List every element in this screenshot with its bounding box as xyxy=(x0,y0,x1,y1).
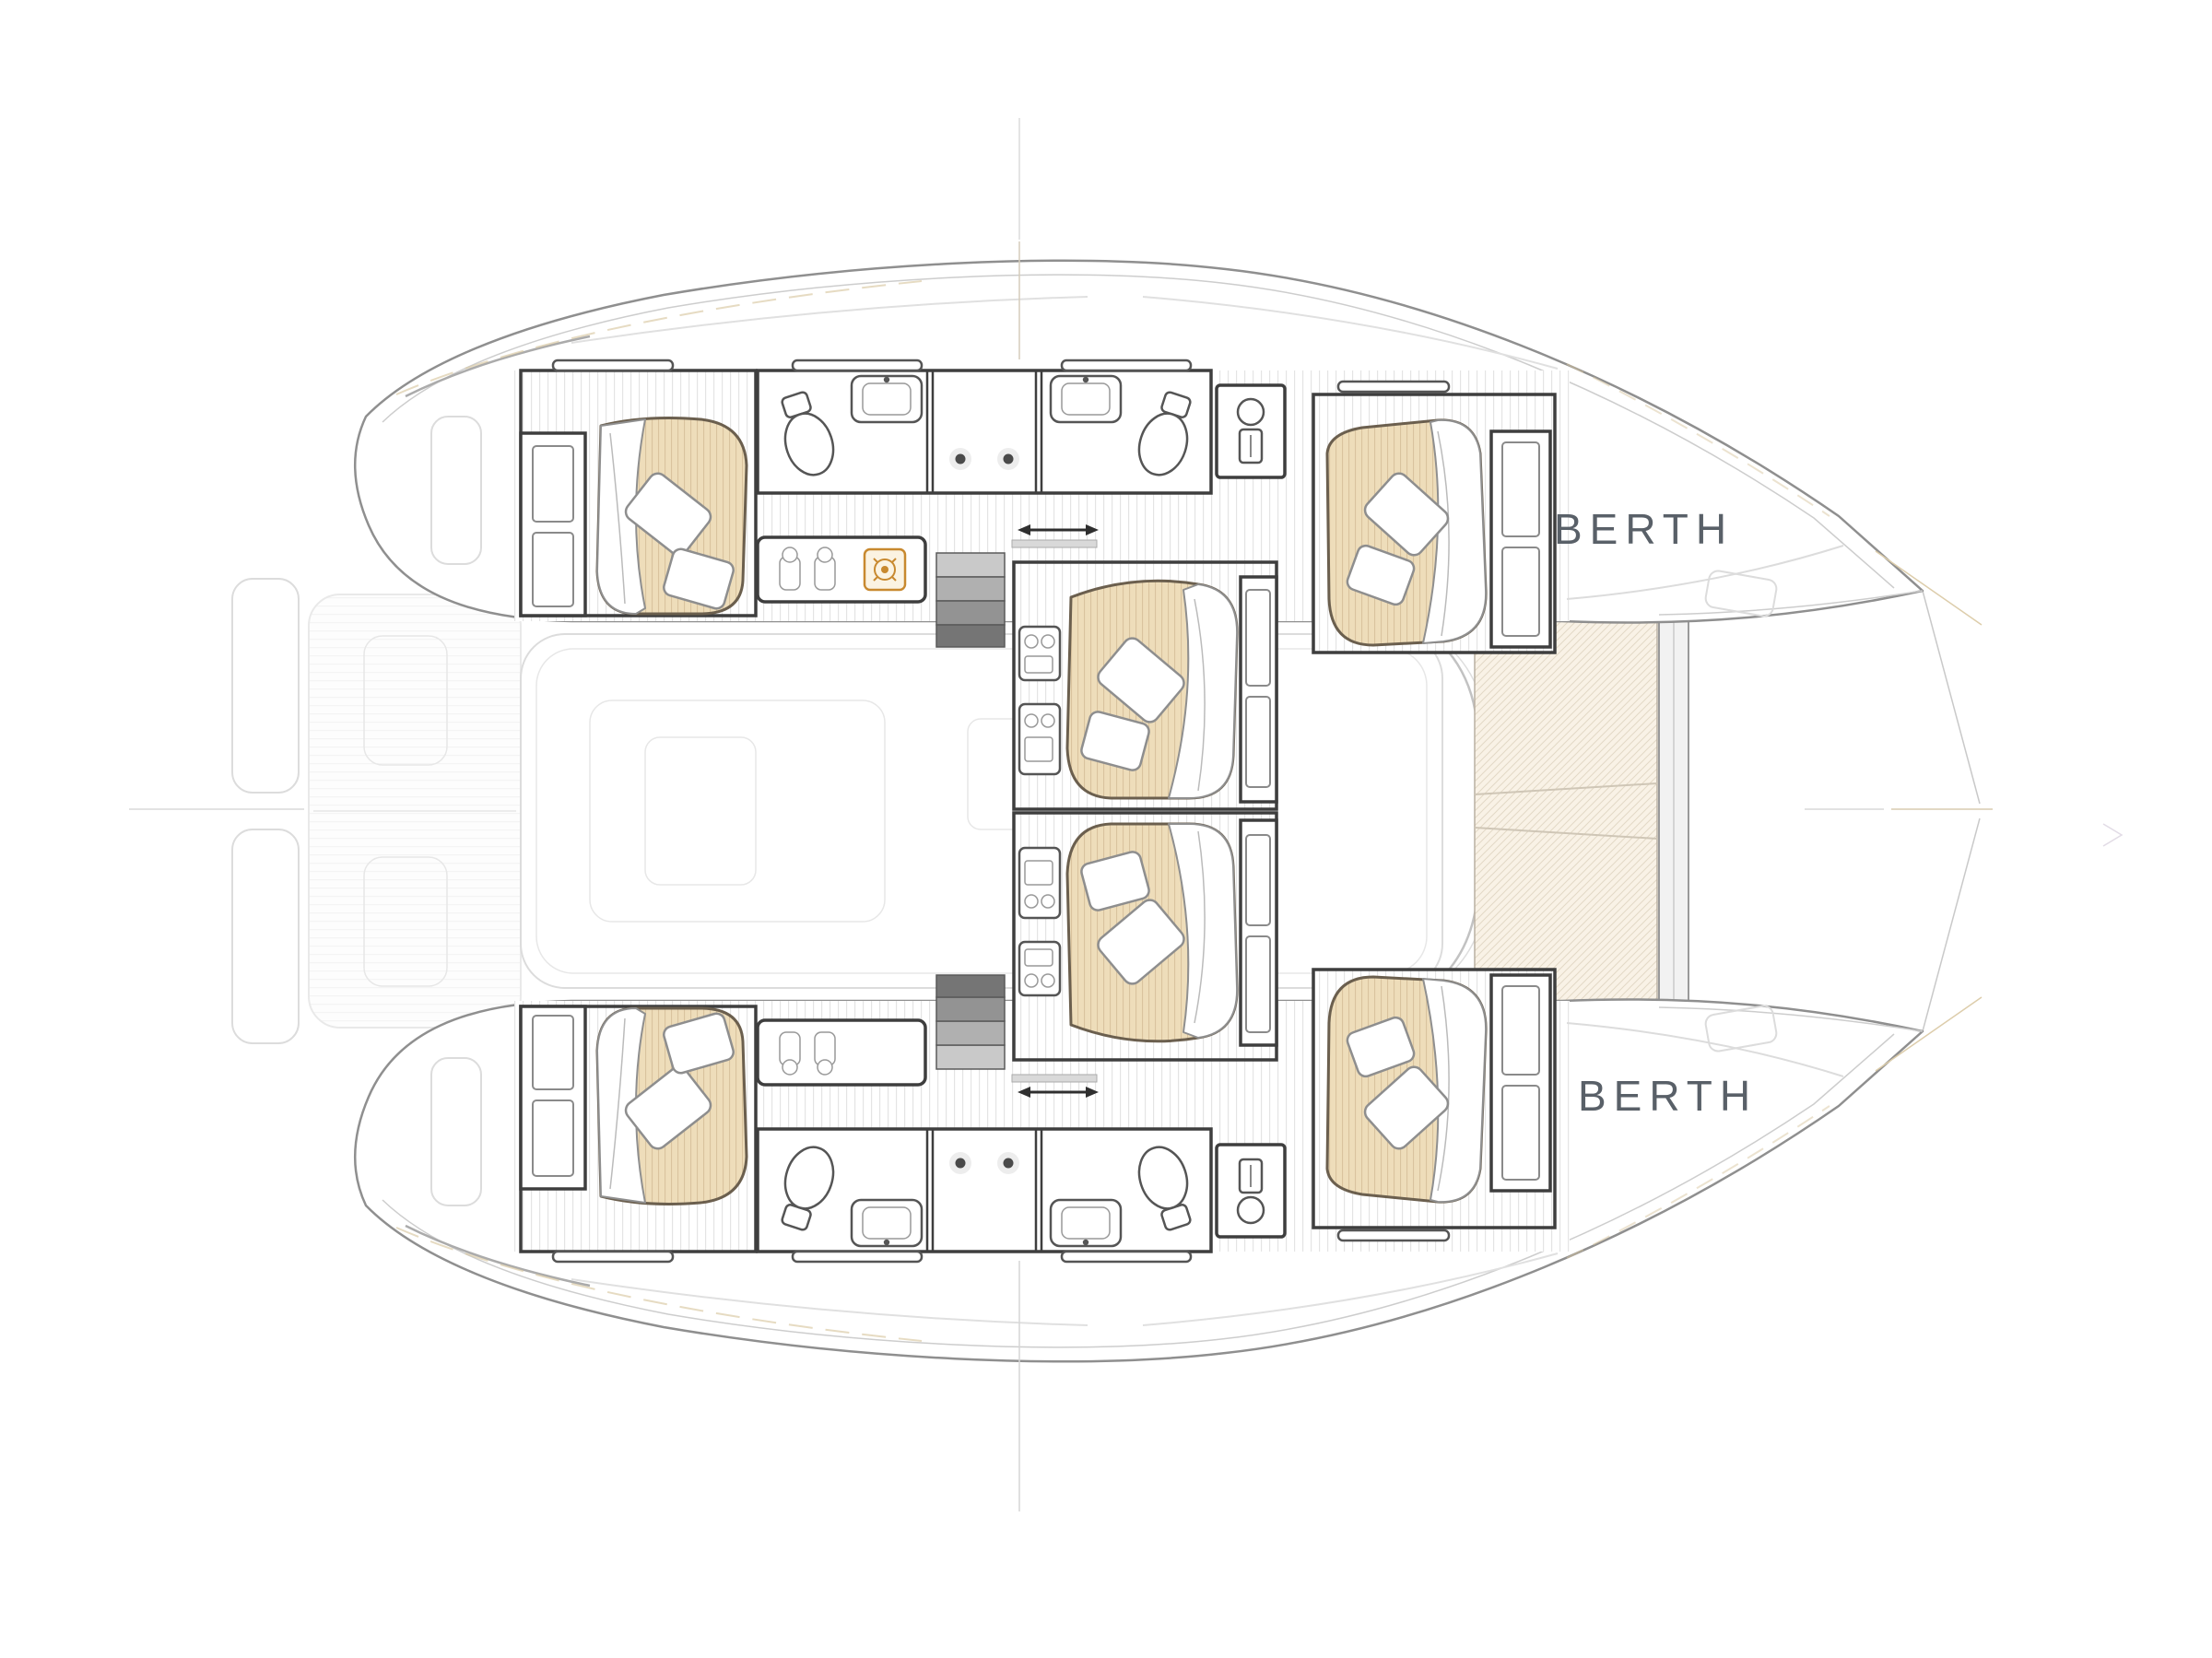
crosshair-chevron xyxy=(2103,824,2122,846)
saloon-sofa xyxy=(590,700,885,922)
bowsprit-line xyxy=(1923,818,1980,1031)
stove-burner-icon xyxy=(865,549,905,590)
berth-label-port: BERTH xyxy=(1554,505,1734,553)
saloon-table xyxy=(645,737,756,885)
saloon-outline xyxy=(521,634,1488,988)
bowsprit-line xyxy=(1923,591,1980,804)
transom-step xyxy=(232,829,299,1043)
berth-label-starboard: BERTH xyxy=(1578,1072,1758,1120)
cockpit-outline xyxy=(232,579,521,1043)
catamaran-floorplan: BERTH BERTH xyxy=(0,0,2212,1658)
transom-step xyxy=(232,579,299,793)
